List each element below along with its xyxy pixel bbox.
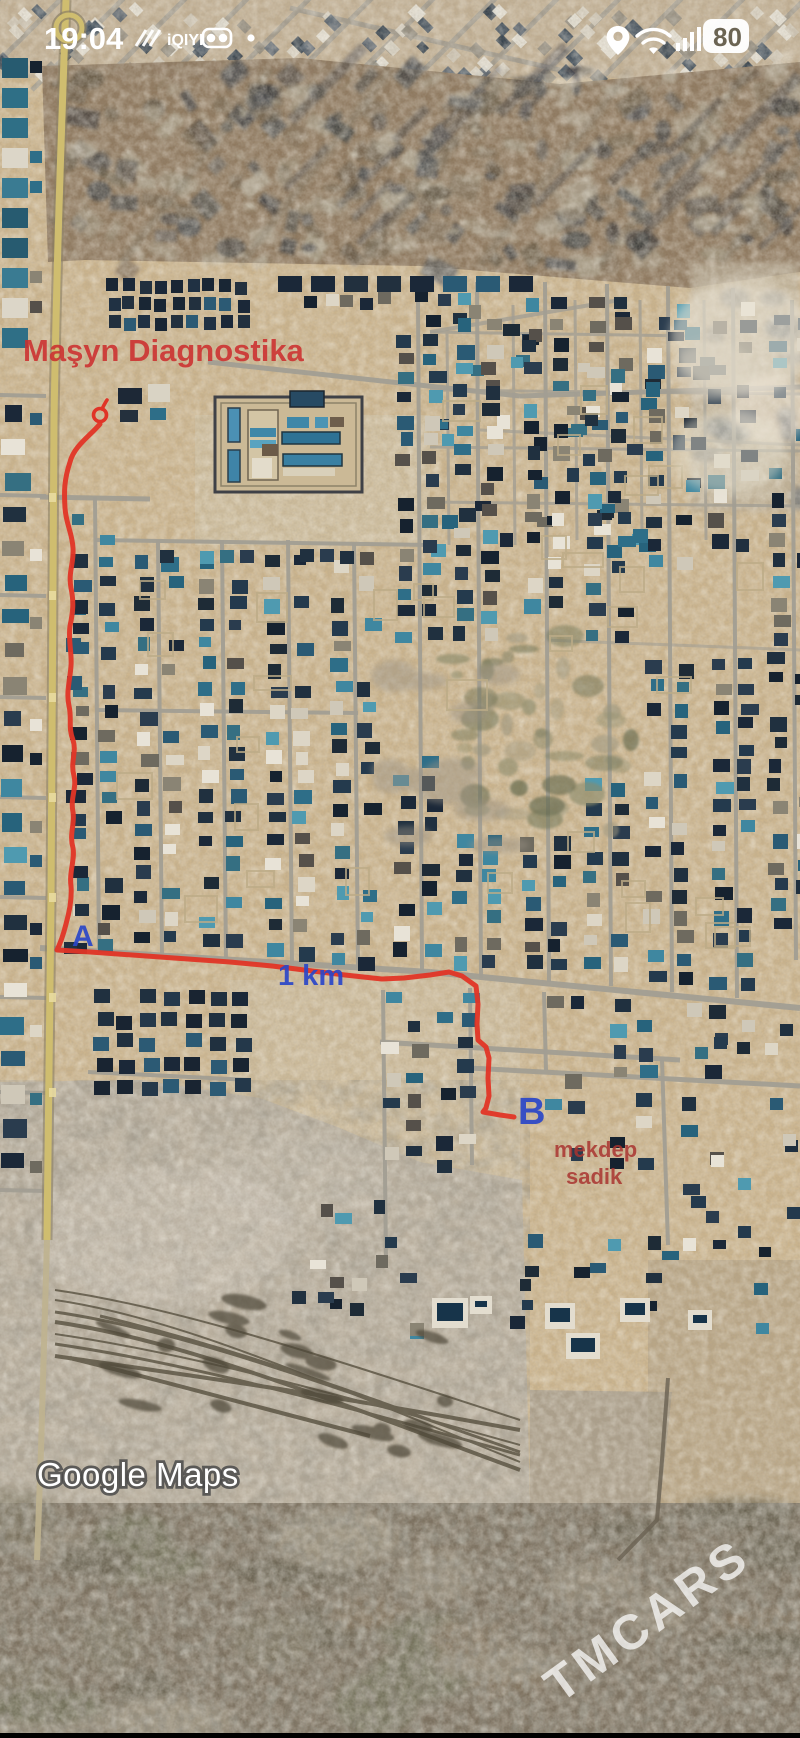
svg-text:80: 80 xyxy=(713,22,742,52)
svg-text:1 km: 1 km xyxy=(278,960,344,992)
svg-text:A: A xyxy=(72,920,94,953)
svg-text:Maşyn Diagnostika: Maşyn Diagnostika xyxy=(23,333,305,368)
svg-text:B: B xyxy=(518,1091,545,1133)
svg-text:19:04: 19:04 xyxy=(44,21,124,56)
svg-text:sadik: sadik xyxy=(566,1164,623,1189)
svg-text:mekdep: mekdep xyxy=(554,1137,637,1162)
svg-text:Google Maps: Google Maps xyxy=(37,1456,239,1493)
svg-text:iQIYI: iQIYI xyxy=(167,32,203,49)
